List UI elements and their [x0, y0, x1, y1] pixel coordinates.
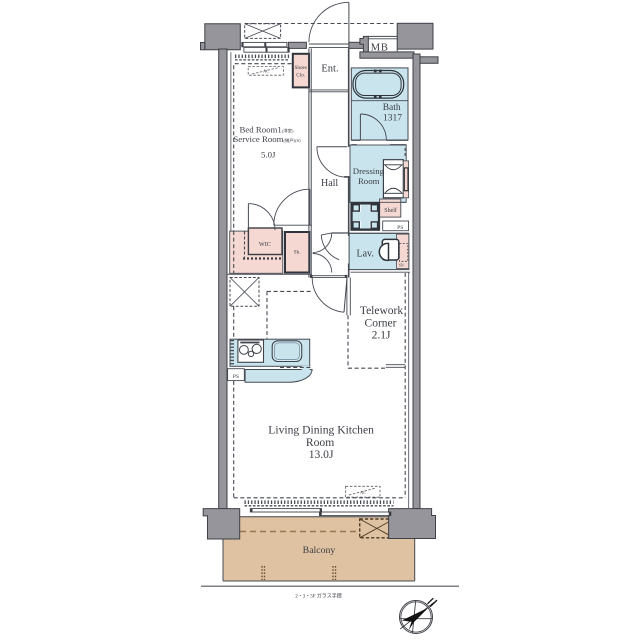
svg-text:13.0J: 13.0J — [309, 448, 334, 461]
svg-text:WIC: WIC — [259, 241, 271, 248]
svg-text:Balcony: Balcony — [303, 545, 336, 556]
svg-text:2・3・5F ガラス手摺: 2・3・5F ガラス手摺 — [295, 593, 341, 600]
svg-text:AC: AC — [263, 69, 269, 74]
svg-text:MB: MB — [371, 42, 389, 53]
svg-text:AC: AC — [360, 490, 366, 495]
svg-text:Shoes: Shoes — [294, 65, 306, 71]
svg-text:Corner: Corner — [365, 318, 397, 330]
svg-text:Telework: Telework — [360, 305, 404, 317]
svg-text:5.0J: 5.0J — [261, 149, 276, 159]
svg-text:PS: PS — [397, 225, 403, 231]
svg-text:2.1J: 2.1J — [372, 330, 391, 342]
svg-text:Shelf: Shelf — [384, 207, 397, 214]
svg-text:Room: Room — [358, 176, 380, 186]
svg-text:Lav.: Lav. — [356, 248, 373, 259]
svg-text:Hall: Hall — [321, 178, 338, 189]
svg-text:Clo.: Clo. — [296, 73, 305, 79]
svg-text:Ent.: Ent. — [321, 63, 338, 74]
svg-text:1317: 1317 — [383, 114, 402, 124]
svg-text:PS: PS — [233, 374, 239, 380]
svg-text:Sh.: Sh. — [294, 250, 301, 256]
svg-text:Living Dining Kitchen: Living Dining Kitchen — [268, 424, 374, 437]
svg-text:Dressing: Dressing — [353, 166, 385, 176]
svg-text:SN: SN — [399, 264, 404, 268]
svg-text:Bath: Bath — [383, 103, 401, 113]
